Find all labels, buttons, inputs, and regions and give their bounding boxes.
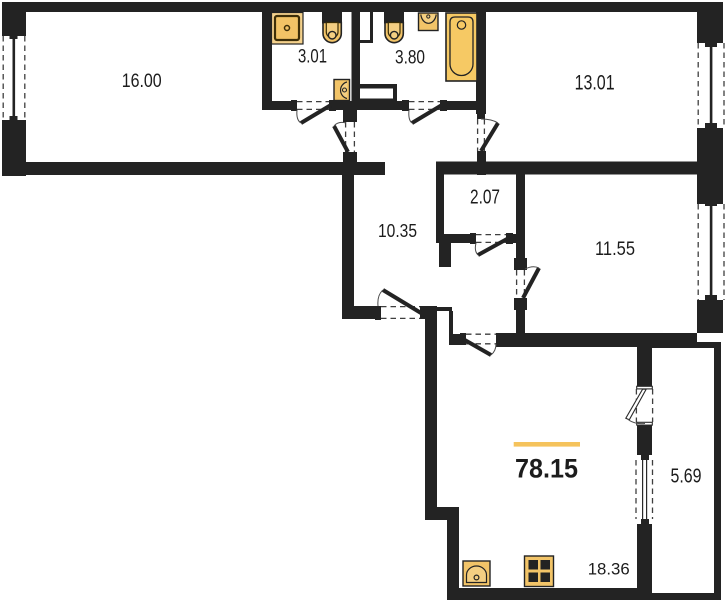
svg-text:16.00: 16.00 <box>122 71 162 92</box>
svg-text:2.07: 2.07 <box>470 187 500 209</box>
svg-text:18.36: 18.36 <box>588 559 630 578</box>
svg-text:11.55: 11.55 <box>595 238 635 260</box>
svg-text:78.15: 78.15 <box>515 454 578 484</box>
svg-text:10.35: 10.35 <box>378 220 417 241</box>
svg-text:3.01: 3.01 <box>298 47 327 68</box>
svg-text:5.69: 5.69 <box>671 466 702 488</box>
svg-text:3.80: 3.80 <box>395 48 425 69</box>
svg-text:13.01: 13.01 <box>575 72 615 95</box>
